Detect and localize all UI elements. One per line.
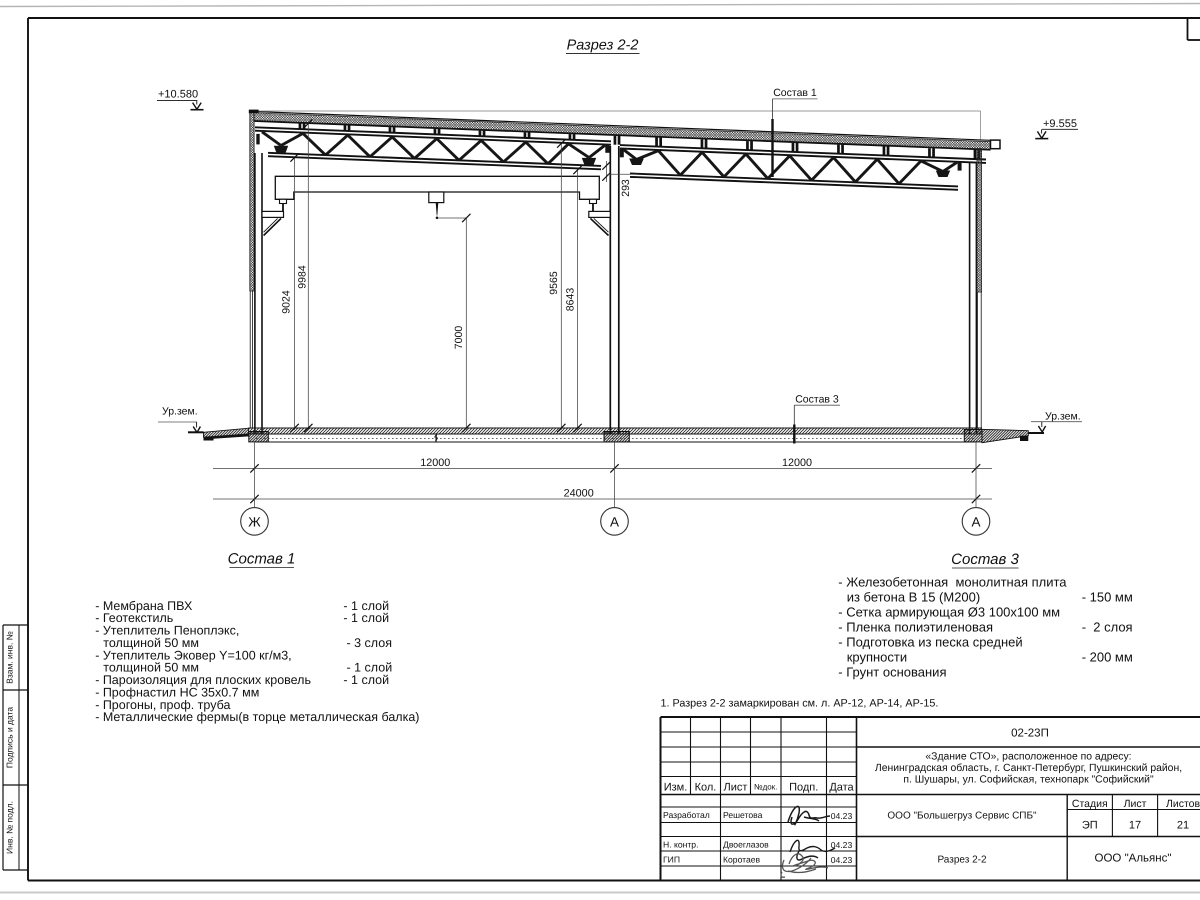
svg-text:8643: 8643 [564, 288, 576, 312]
svg-text:ООО "Большегруз Сервис СПБ": ООО "Большегруз Сервис СПБ" [887, 811, 1037, 822]
svg-text:02-23П: 02-23П [1011, 728, 1049, 740]
svg-text:Лист: Лист [724, 781, 748, 793]
svg-text:Подпись и дата: Подпись и дата [5, 707, 15, 768]
svg-text:- Подготовка из песка средней: - Подготовка из песка средней [838, 635, 1022, 650]
svg-text:Состав 3: Состав 3 [951, 551, 1019, 568]
svg-text:12000: 12000 [782, 457, 812, 469]
svg-text:Двоеглазов: Двоеглазов [723, 840, 769, 850]
svg-text:ЭП: ЭП [1082, 820, 1098, 832]
svg-text:- 1 слой: - 1 слой [343, 673, 389, 687]
svg-text:п. Шушары, ул. Софийская, техн: п. Шушары, ул. Софийская, технопарк "Соф… [903, 775, 1154, 786]
svg-text:04.23: 04.23 [831, 855, 853, 865]
svg-text:«Здание СТО», расположенное по: «Здание СТО», расположенное по адресу: [925, 752, 1131, 763]
svg-text:А: А [971, 514, 980, 529]
svg-text:Изм.: Изм. [664, 781, 688, 793]
svg-text:Ур.зем.: Ур.зем. [1045, 410, 1081, 422]
svg-text:- Сетка армирующая Ø3 100х100: - Сетка армирующая Ø3 100х100 мм [838, 605, 1060, 620]
svg-text:04.23: 04.23 [831, 811, 853, 821]
svg-text:Дата: Дата [829, 781, 854, 793]
svg-text:Решетова: Решетова [723, 810, 763, 820]
svg-text:Подп.: Подп. [789, 781, 818, 793]
svg-text:12000: 12000 [420, 457, 450, 469]
svg-text:+10.580: +10.580 [158, 88, 198, 100]
svg-text:- 2 слоя: - 2 слоя [1082, 620, 1133, 635]
svg-text:1. Разрез 2-2 замаркирован см.: 1. Разрез 2-2 замаркирован см. л. АР-12,… [661, 698, 939, 710]
svg-text:293: 293 [620, 179, 632, 197]
svg-text:Кол.: Кол. [695, 781, 717, 793]
svg-text:Лист: Лист [1124, 798, 1147, 810]
svg-text:Ж: Ж [248, 514, 261, 529]
svg-text:Листов: Листов [1166, 798, 1200, 810]
svg-text:Разрез 2-2: Разрез 2-2 [937, 855, 987, 866]
svg-text:Коротаев: Коротаев [723, 854, 761, 864]
svg-text:Инв. № подл.: Инв. № подл. [5, 801, 15, 854]
svg-text:Состав 1: Состав 1 [228, 551, 296, 568]
svg-text:Стадия: Стадия [1072, 798, 1108, 810]
svg-text:- 1 слой: - 1 слой [343, 611, 389, 625]
svg-text:Взам. инв. №: Взам. инв. № [5, 631, 15, 684]
svg-text:- 150 мм: - 150 мм [1082, 590, 1133, 605]
svg-text:А: А [610, 514, 619, 529]
svg-text:- Металлические фермы(в торце: - Металлические фермы(в торце металличес… [95, 710, 419, 724]
svg-text:Разрез 2-2: Разрез 2-2 [567, 38, 639, 54]
svg-text:17: 17 [1129, 820, 1141, 832]
svg-text:9565: 9565 [548, 271, 560, 295]
svg-text:- Грунт основания: - Грунт основания [838, 665, 946, 680]
svg-text:9984: 9984 [297, 265, 309, 289]
svg-text:Состав 1: Состав 1 [773, 87, 817, 99]
svg-text:- Пленка полиэтиленовая: - Пленка полиэтиленовая [838, 620, 993, 635]
svg-text:из бетона В 15 (М200): из бетона В 15 (М200) [847, 590, 981, 605]
svg-text:Разработал: Разработал [663, 810, 710, 820]
svg-text:+9.555: +9.555 [1043, 118, 1077, 130]
svg-text:Н. контр.: Н. контр. [663, 840, 698, 850]
svg-text:9024: 9024 [280, 290, 292, 314]
svg-text:Ленинградская область, г. Санк: Ленинградская область, г. Санкт-Петербур… [875, 763, 1182, 774]
svg-text:№док.: №док. [754, 783, 777, 792]
svg-text:Ур.зем.: Ур.зем. [162, 405, 198, 417]
svg-text:ГИП: ГИП [663, 854, 680, 864]
svg-text:Состав 3: Состав 3 [795, 394, 839, 406]
svg-text:7000: 7000 [453, 326, 465, 350]
svg-text:- Железобетонная монолитная п: - Железобетонная монолитная плита [838, 575, 1067, 590]
svg-text:21: 21 [1177, 820, 1189, 832]
svg-text:- 3 слоя: - 3 слоя [347, 636, 392, 650]
svg-text:24000: 24000 [564, 487, 594, 499]
svg-text:- 200 мм: - 200 мм [1082, 650, 1133, 665]
svg-text:крупности: крупности [847, 650, 907, 665]
svg-text:ООО "Альянс": ООО "Альянс" [1095, 853, 1172, 865]
